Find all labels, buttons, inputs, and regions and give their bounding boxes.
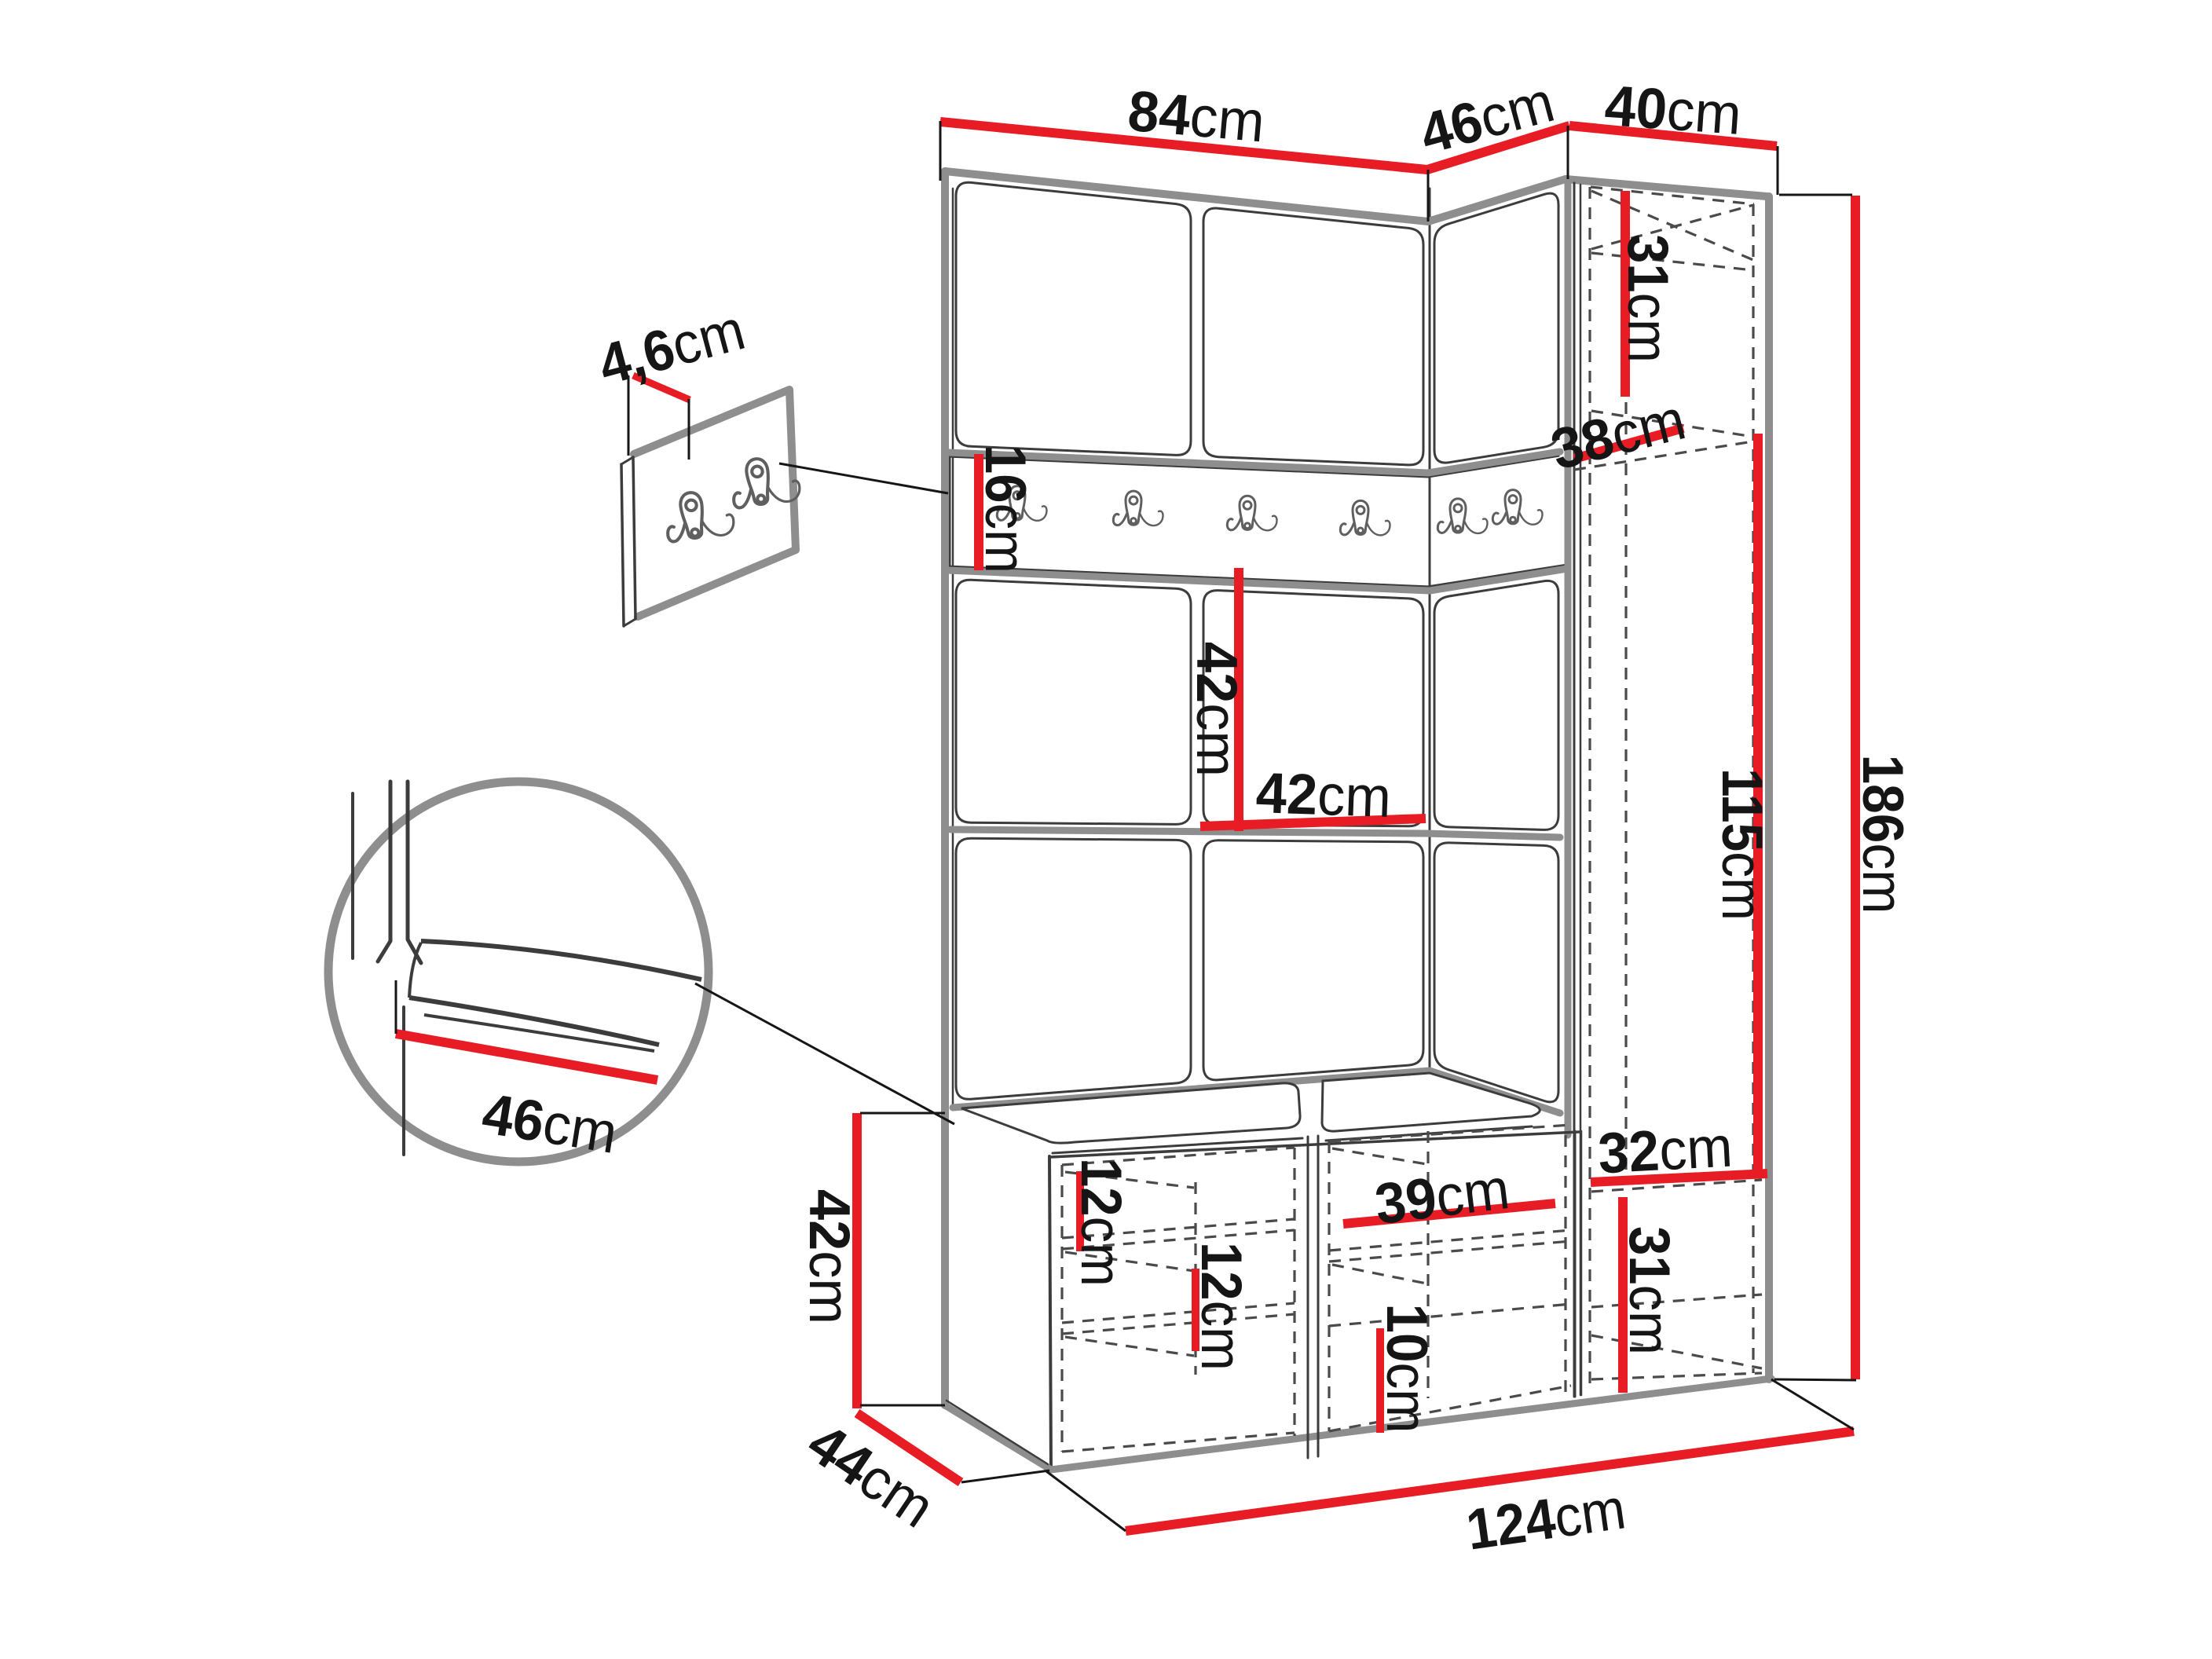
svg-text:186cm: 186cm xyxy=(1851,755,1915,914)
svg-text:115cm: 115cm xyxy=(1711,768,1774,921)
svg-text:84cm: 84cm xyxy=(1126,79,1267,154)
svg-text:42cm: 42cm xyxy=(1255,761,1393,829)
svg-text:32cm: 32cm xyxy=(1596,1115,1734,1185)
svg-text:16cm: 16cm xyxy=(974,445,1038,573)
svg-text:31cm: 31cm xyxy=(1617,234,1680,363)
svg-text:42cm: 42cm xyxy=(1185,642,1249,777)
svg-text:31cm: 31cm xyxy=(1618,1226,1682,1355)
svg-text:40cm: 40cm xyxy=(1602,74,1743,147)
svg-text:12cm: 12cm xyxy=(1190,1242,1254,1371)
svg-text:42cm: 42cm xyxy=(798,1189,862,1324)
svg-text:12cm: 12cm xyxy=(1070,1158,1133,1287)
svg-text:10cm: 10cm xyxy=(1375,1304,1439,1434)
